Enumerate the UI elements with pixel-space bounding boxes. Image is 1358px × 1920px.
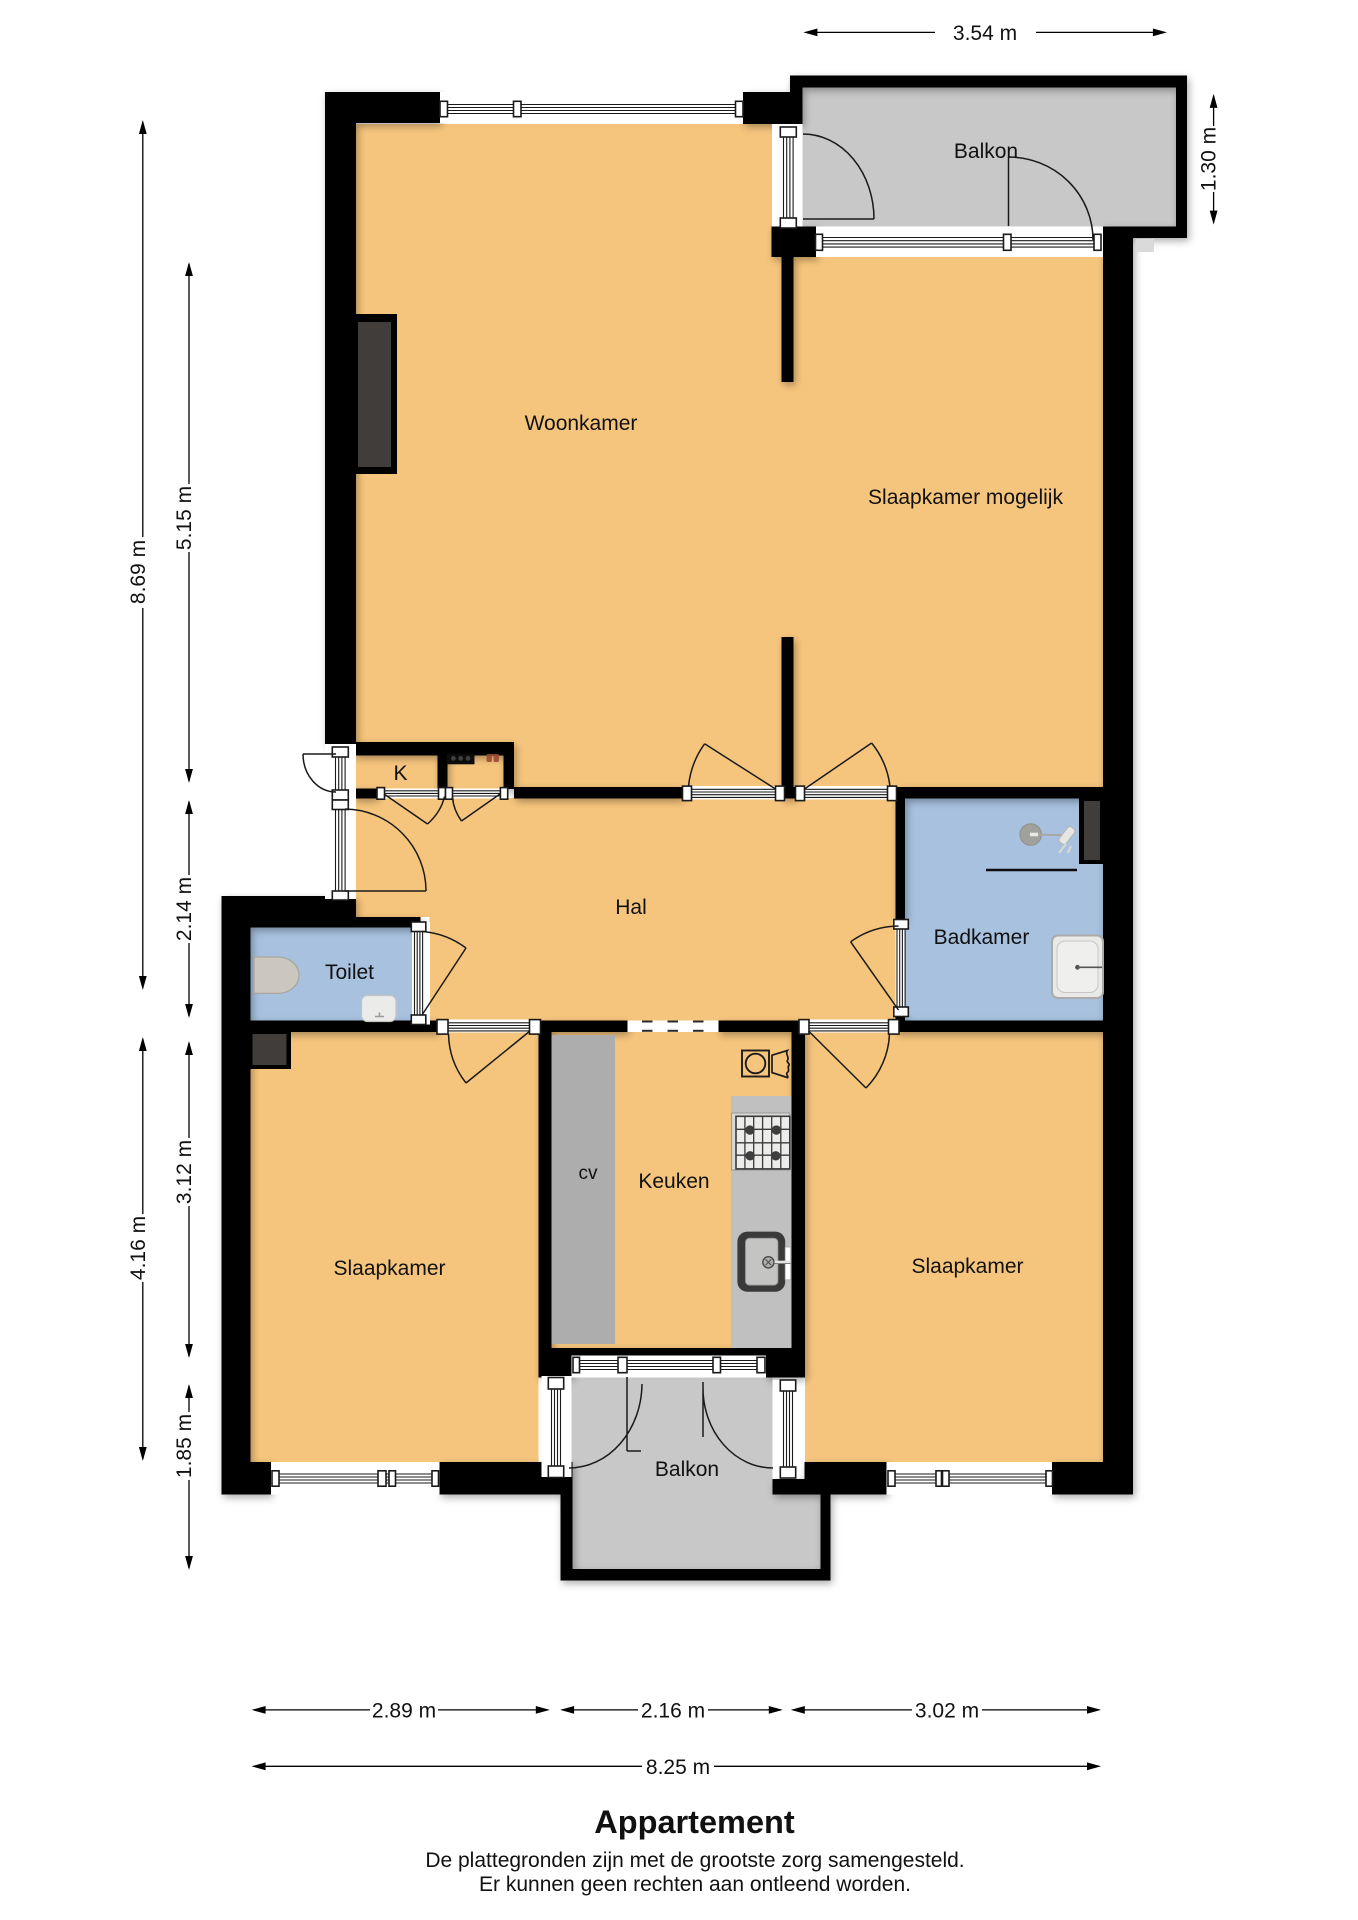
svg-text:1.85 m: 1.85 m <box>173 1414 196 1478</box>
svg-text:2.14 m: 2.14 m <box>173 877 196 941</box>
svg-text:3.54 m: 3.54 m <box>953 22 1017 45</box>
svg-text:1.30 m: 1.30 m <box>1198 127 1221 191</box>
svg-text:2.16 m: 2.16 m <box>641 1700 705 1723</box>
svg-text:3.02 m: 3.02 m <box>915 1700 979 1723</box>
svg-text:De plattegronden zijn met de g: De plattegronden zijn met de grootste zo… <box>425 1849 964 1872</box>
svg-text:Slaapkamer mogelijk: Slaapkamer mogelijk <box>868 486 1063 509</box>
svg-text:Balkon: Balkon <box>655 1458 719 1481</box>
svg-text:Hal: Hal <box>615 896 647 919</box>
svg-text:Slaapkamer: Slaapkamer <box>333 1257 445 1280</box>
svg-text:cv: cv <box>579 1163 599 1184</box>
svg-text:Keuken: Keuken <box>638 1170 709 1193</box>
svg-text:Toilet: Toilet <box>325 961 374 984</box>
svg-text:3.12 m: 3.12 m <box>173 1140 196 1204</box>
svg-text:Slaapkamer: Slaapkamer <box>911 1255 1023 1278</box>
svg-text:5.15 m: 5.15 m <box>173 486 196 550</box>
svg-text:Woonkamer: Woonkamer <box>525 412 638 435</box>
svg-text:8.69 m: 8.69 m <box>127 540 150 604</box>
svg-text:8.25 m: 8.25 m <box>646 1756 710 1779</box>
svg-text:4.16 m: 4.16 m <box>127 1216 150 1280</box>
svg-text:Appartement: Appartement <box>594 1804 795 1840</box>
svg-text:Er kunnen geen rechten aan ont: Er kunnen geen rechten aan ontleend word… <box>479 1873 911 1896</box>
svg-text:K: K <box>393 762 407 785</box>
svg-text:Balkon: Balkon <box>954 140 1018 163</box>
svg-text:Badkamer: Badkamer <box>934 926 1030 949</box>
svg-text:2.89 m: 2.89 m <box>372 1700 436 1723</box>
